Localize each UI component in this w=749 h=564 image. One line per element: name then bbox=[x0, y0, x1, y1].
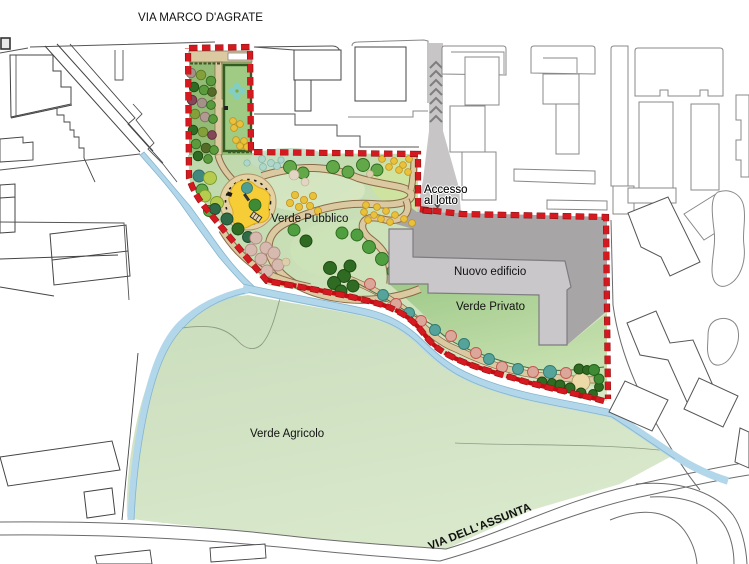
svg-text:al lotto: al lotto bbox=[424, 195, 458, 207]
svg-text:Nuovo edificio: Nuovo edificio bbox=[454, 266, 526, 278]
svg-text:Verde Agricolo: Verde Agricolo bbox=[250, 428, 324, 440]
svg-text:Verde Privato: Verde Privato bbox=[456, 301, 525, 313]
svg-text:VIA MARCO D'AGRATE: VIA MARCO D'AGRATE bbox=[138, 11, 263, 24]
svg-text:Verde Pubblico: Verde Pubblico bbox=[271, 213, 348, 225]
